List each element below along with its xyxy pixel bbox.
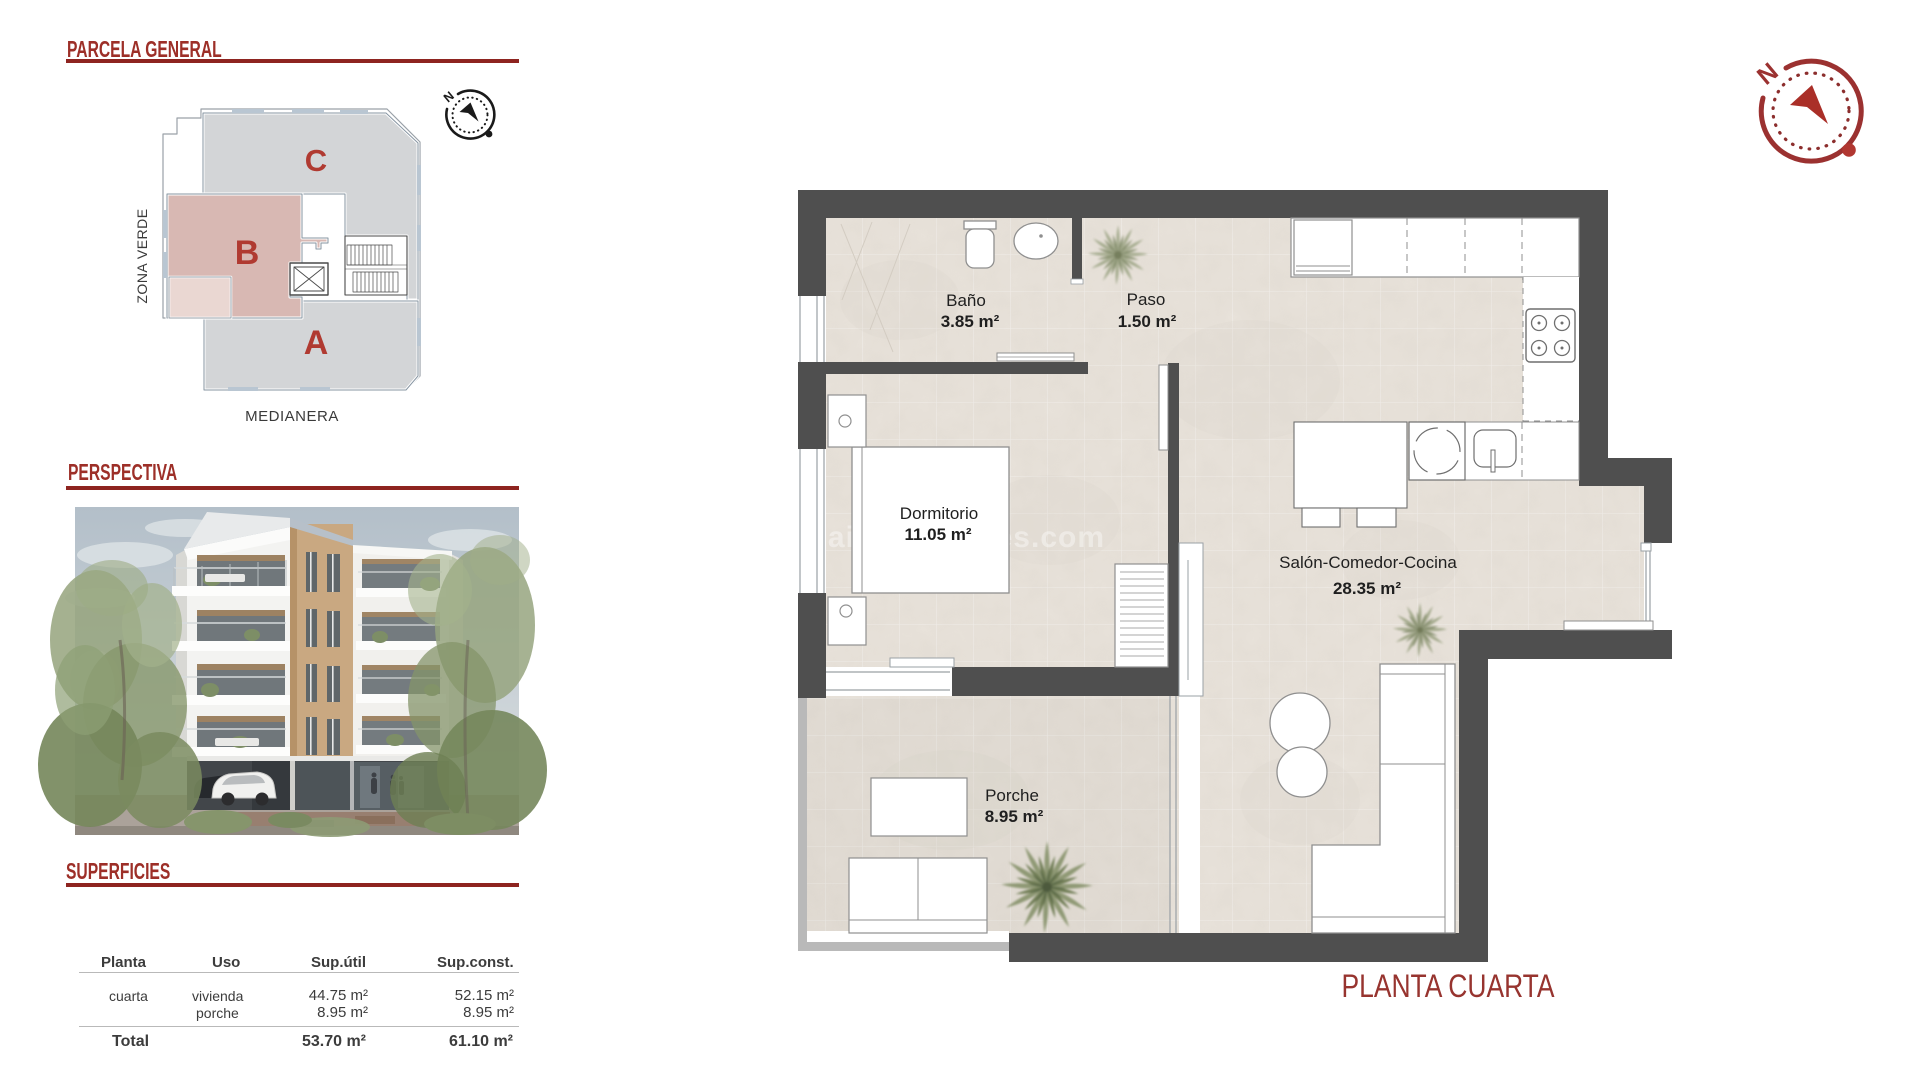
svg-text:3.85 m²: 3.85 m² <box>941 312 1000 331</box>
svg-text:C: C <box>305 143 327 178</box>
svg-text:1.50 m²: 1.50 m² <box>1118 312 1177 331</box>
svg-text:PLANTA CUARTA: PLANTA CUARTA <box>1342 968 1556 1004</box>
svg-text:Baño: Baño <box>946 291 986 310</box>
svg-text:11.05 m²: 11.05 m² <box>904 525 971 544</box>
svg-text:N: N <box>441 89 457 106</box>
svg-text:A: A <box>304 324 329 362</box>
svg-text:8.95 m²: 8.95 m² <box>985 807 1044 826</box>
svg-text:Paso: Paso <box>1127 290 1166 309</box>
svg-text:MEDIANERA: MEDIANERA <box>245 408 339 425</box>
svg-text:ZONA VERDE: ZONA VERDE <box>134 208 150 303</box>
svg-text:Salón-Comedor-Cocina: Salón-Comedor-Cocina <box>1279 553 1457 572</box>
svg-text:28.35 m²: 28.35 m² <box>1333 579 1401 598</box>
svg-text:B: B <box>235 234 260 272</box>
svg-text:N: N <box>1752 58 1784 91</box>
svg-text:Porche: Porche <box>985 786 1039 805</box>
svg-text:Dormitorio: Dormitorio <box>900 504 978 523</box>
